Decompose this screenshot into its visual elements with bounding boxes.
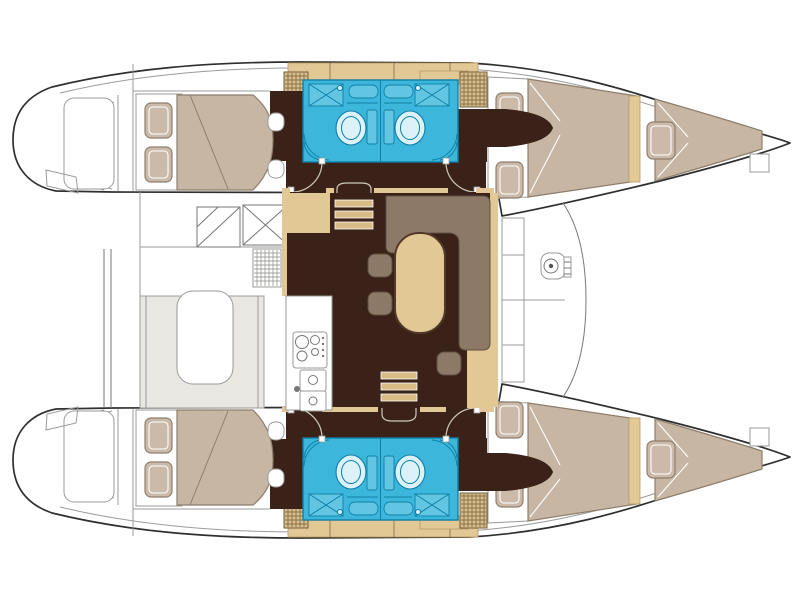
aft-berth-duvet — [177, 95, 273, 190]
step-tread — [381, 394, 417, 401]
corridor-floor — [457, 145, 487, 162]
cockpit-table — [177, 291, 233, 384]
step-tread — [335, 222, 373, 229]
saloon-table — [395, 233, 445, 333]
saloon-wall — [326, 188, 334, 193]
door-post — [443, 158, 449, 164]
saloon-wall — [282, 188, 290, 193]
fwd-berth-duvet — [528, 79, 637, 197]
stool — [368, 292, 392, 315]
stern-platform-seat — [64, 98, 114, 189]
bow-fitting — [750, 154, 769, 172]
toilet-tank — [384, 110, 394, 144]
saloon-wall — [374, 188, 448, 193]
galley-sink — [300, 370, 326, 391]
stove-knob — [322, 349, 324, 351]
galley-sink — [300, 391, 326, 411]
step-tread — [381, 383, 417, 390]
saloon-wall — [476, 188, 494, 193]
faucet — [338, 86, 343, 91]
stove-knob — [322, 343, 324, 345]
stool — [368, 254, 392, 277]
saloon-aft-wall — [282, 193, 287, 296]
counter-top — [384, 85, 413, 98]
stool — [437, 352, 461, 375]
counter-top — [349, 85, 378, 98]
door-post — [319, 158, 325, 164]
windlass-axle — [549, 264, 553, 268]
floor-plan-canvas — [0, 0, 800, 600]
stove-knob — [322, 337, 324, 339]
bedside-shelf — [268, 113, 284, 131]
toilet-tank — [367, 110, 377, 144]
stove-knob — [322, 355, 324, 357]
step-tread — [335, 200, 373, 207]
step-tread — [381, 372, 417, 379]
faucet — [416, 86, 421, 91]
galley-faucet — [294, 386, 300, 392]
hull-corridor-floor — [286, 160, 486, 192]
bedside-shelf — [268, 160, 284, 178]
nav-station-floor — [287, 193, 330, 233]
saloon — [282, 183, 498, 421]
step-tread — [335, 211, 373, 218]
catamaran-floor-plan — [0, 0, 800, 600]
forepeak-bulkhead — [629, 96, 640, 182]
saloon-wall — [420, 407, 446, 412]
